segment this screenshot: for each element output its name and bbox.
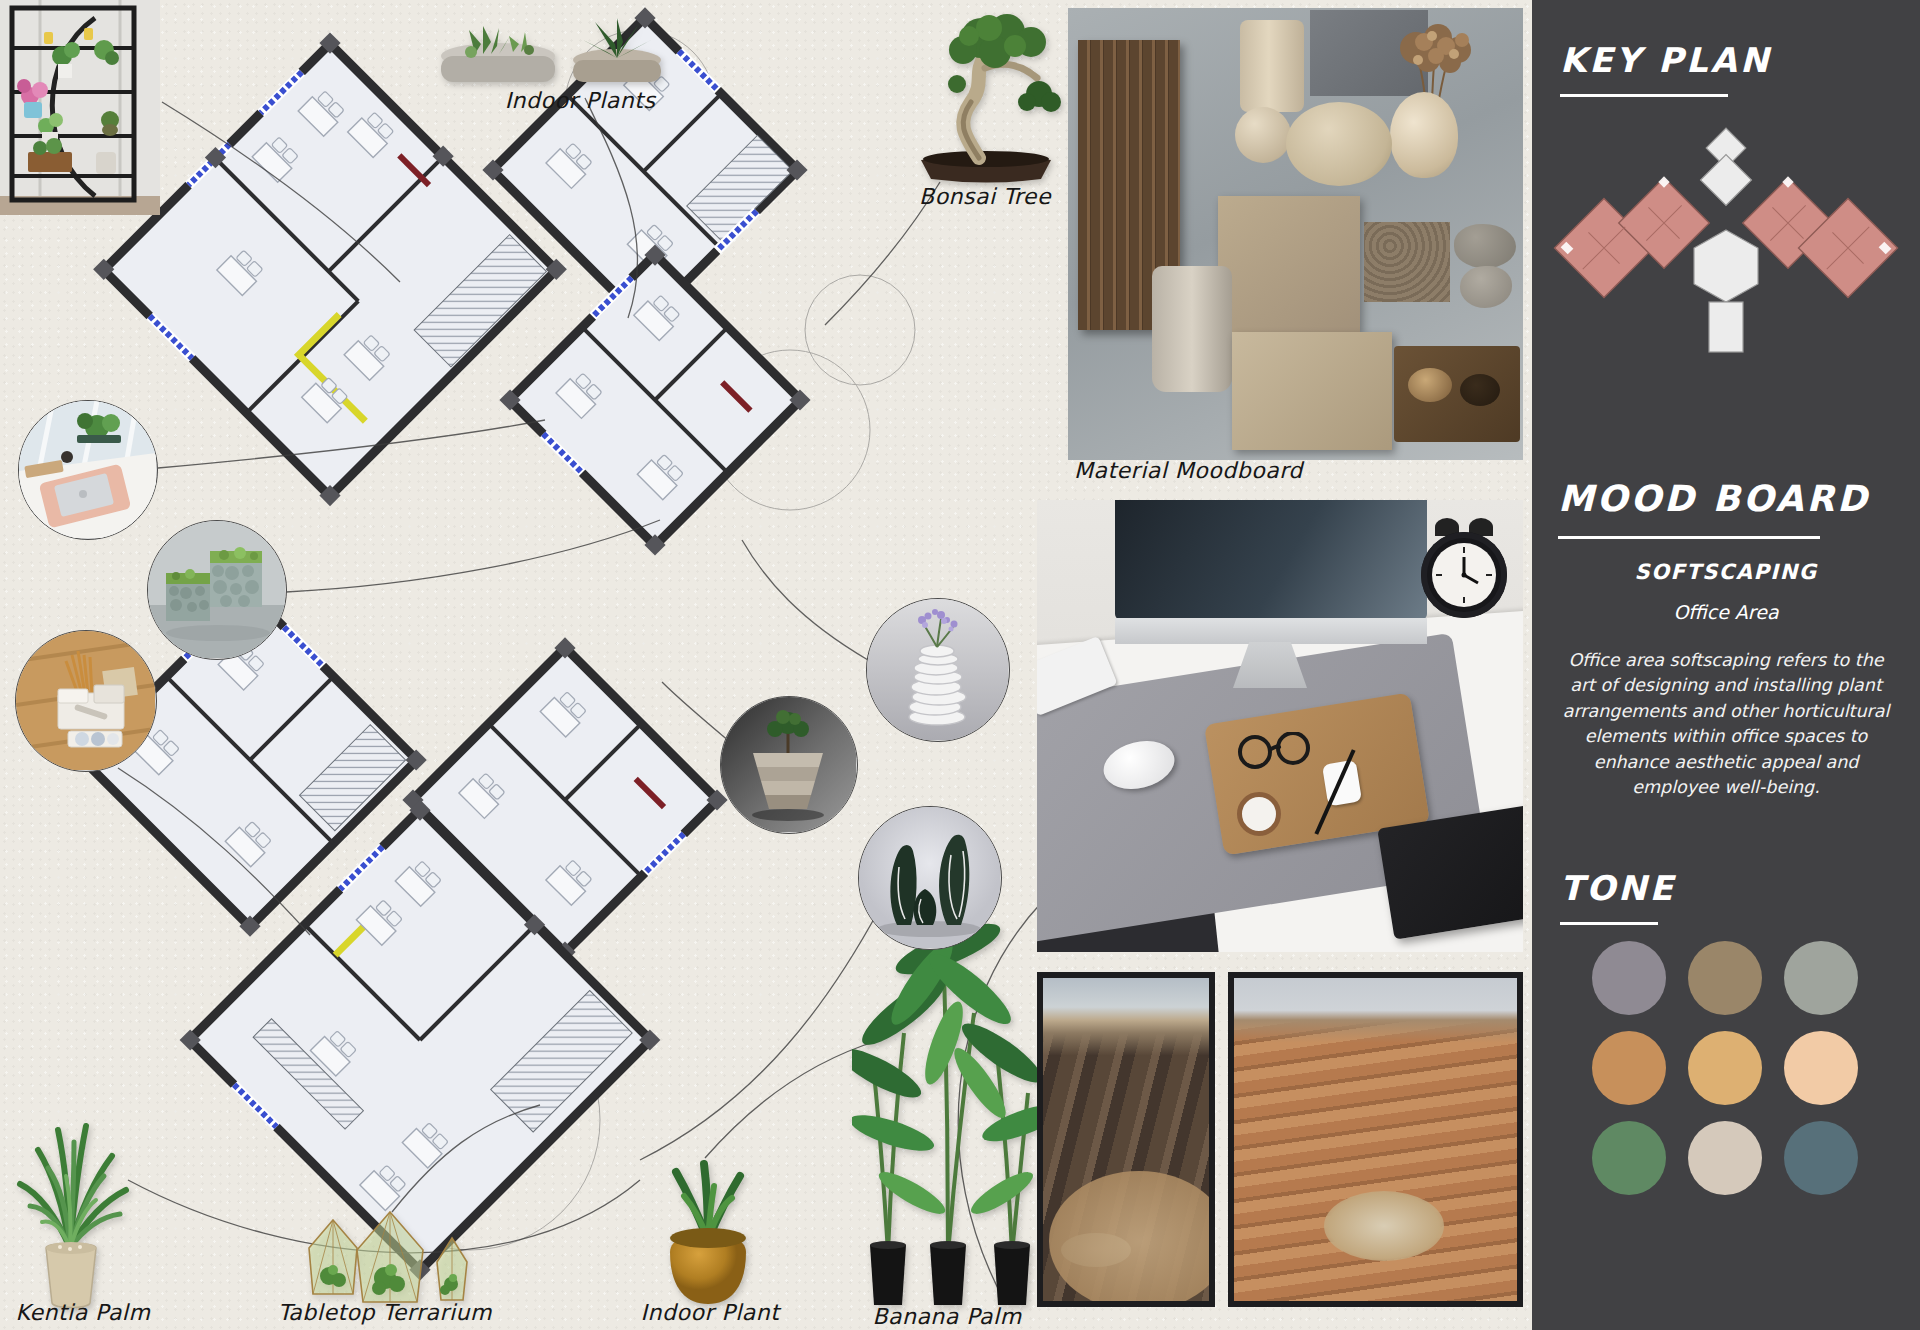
tone-swatch-grid: [1592, 941, 1858, 1195]
tone-swatch-slate-teal: [1784, 1121, 1858, 1195]
key-plan-map: [1544, 118, 1908, 363]
imac-screen: [1115, 500, 1427, 620]
aerial-mine-photo-left: [1037, 972, 1215, 1307]
beige-tile-sample: [1218, 196, 1360, 332]
tone-swatch-taupe-brown: [1688, 941, 1762, 1015]
tone-swatch-copper-tan: [1592, 1031, 1666, 1105]
key-plan-title: KEY PLAN: [1560, 40, 1771, 80]
round-ceramic-vase: [1390, 92, 1458, 178]
concrete-planter-callout: [720, 696, 858, 834]
indoor-plant-label: Indoor Plant: [630, 1300, 790, 1325]
material-moodboard-photo: [1068, 8, 1523, 460]
airpods-case: [1322, 760, 1362, 807]
indoor-plants-label: Indoor Plants: [460, 88, 700, 113]
tone-swatch-moss-green: [1592, 1121, 1666, 1195]
aerial-mine-photo-right: [1228, 972, 1523, 1307]
desk-organizer-callout: [15, 630, 157, 772]
key-plan-underline: [1560, 94, 1728, 97]
alarm-clock-face: [1432, 543, 1496, 607]
tone-swatch-golden-sand: [1688, 1031, 1762, 1105]
bonsai-tree-cutout: [903, 2, 1069, 186]
sculptural-vases-callout: [858, 806, 1002, 950]
kentia-palm-cutout: [8, 1098, 134, 1310]
mood-board-title: MOOD BOARD: [1558, 478, 1870, 519]
plan-cluster-bottom: [73, 583, 727, 1280]
stone-sphere: [1235, 107, 1291, 163]
imac-chin: [1115, 618, 1427, 644]
plant-shelf-photo: [0, 0, 160, 215]
ceramic-cylinder-vase: [1240, 20, 1304, 112]
wrist-watch: [1237, 792, 1281, 836]
wood-bowl-right: [1460, 374, 1500, 406]
tabletop-terrarium-cutout: [295, 1210, 475, 1308]
black-notebook: [1377, 804, 1523, 939]
tabletop-terrarium-label: Tabletop Terrarium: [270, 1300, 500, 1325]
rough-stone-square: [1364, 222, 1450, 302]
tone-title: TONE: [1560, 868, 1676, 908]
oval-stone-disc: [1286, 102, 1392, 186]
pebble-large: [1454, 224, 1516, 268]
material-moodboard-label: Material Moodboard: [1074, 458, 1303, 483]
tone-swatch-mauve-gray: [1592, 941, 1666, 1015]
info-sidebar: KEY PLAN: [1532, 0, 1920, 1330]
wood-bowl-left: [1408, 368, 1452, 402]
tone-swatch-sage-gray: [1784, 941, 1858, 1015]
pebble-small: [1460, 266, 1512, 308]
mine-flat-ground: [1049, 1171, 1215, 1307]
desk-scene-callout: [18, 400, 158, 540]
tone-swatch-soft-peach: [1784, 1031, 1858, 1105]
eyeglasses: [1233, 732, 1323, 772]
softscaping-description: Office area softscaping refers to the ar…: [1554, 648, 1898, 800]
office-desk-photo: [1037, 500, 1523, 952]
kentia-palm-label: Kentia Palm: [8, 1300, 158, 1325]
concrete-cup: [1152, 266, 1232, 392]
banana-palm-label: Banana Palm: [872, 1304, 1022, 1329]
indoor-plant-cutout: [648, 1156, 768, 1308]
tone-swatch-warm-beige: [1688, 1121, 1762, 1195]
softscaping-presentation-board: Indoor Plants Bonsai Tree: [0, 0, 1920, 1330]
softscaping-subtitle: SOFTSCAPING: [1532, 560, 1920, 584]
banana-palm-cutout: [852, 893, 1044, 1311]
pebble-vase-callout: [866, 598, 1010, 742]
moss-planters-callout: [147, 520, 287, 660]
tone-underline: [1560, 922, 1658, 925]
mine-facility: [1324, 1191, 1444, 1261]
mood-board-underline: [1558, 536, 1820, 539]
travertine-tile-sample: [1232, 332, 1392, 450]
office-area-label: Office Area: [1532, 601, 1920, 623]
bonsai-tree-label: Bonsai Tree: [900, 184, 1070, 209]
